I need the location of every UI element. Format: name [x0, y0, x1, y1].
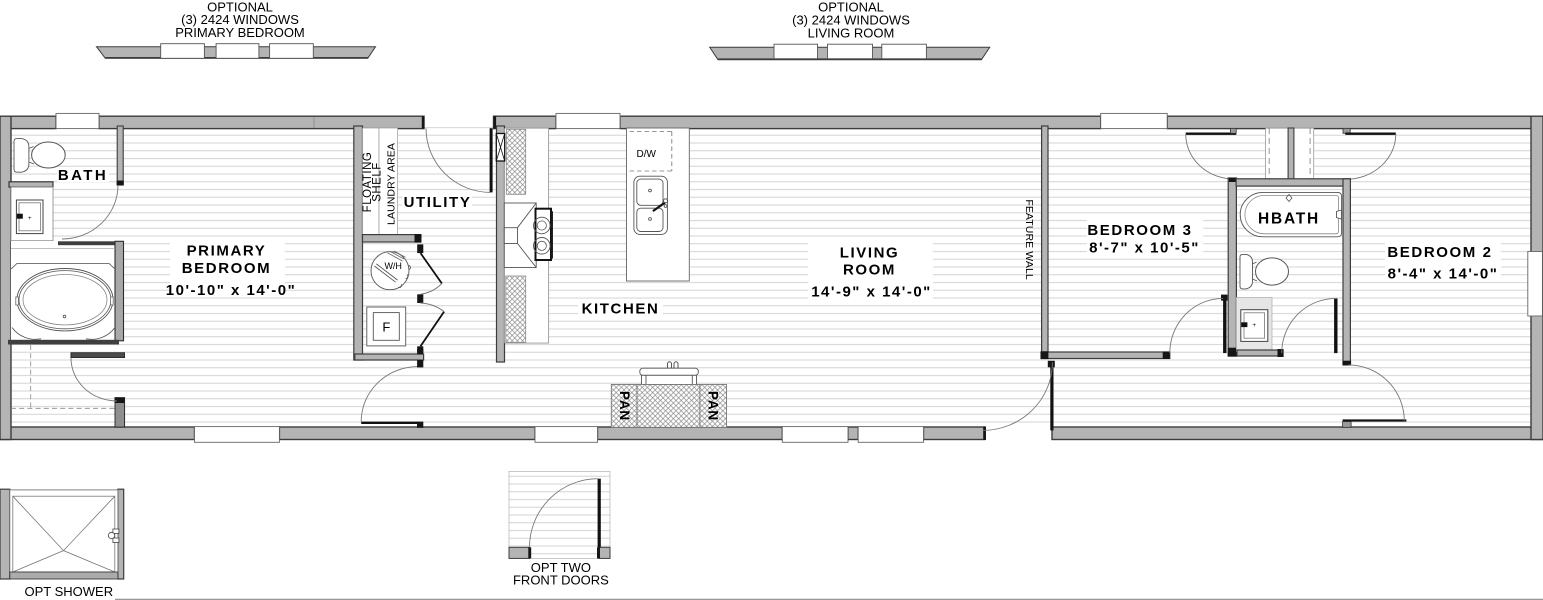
svg-text:BATH: BATH [58, 167, 108, 184]
svg-text:PRIMARY: PRIMARY [187, 242, 267, 259]
svg-text:PAN: PAN [706, 391, 721, 421]
svg-text:OPT SHOWER: OPT SHOWER [24, 584, 113, 599]
svg-text:BEDROOM 2: BEDROOM 2 [1387, 244, 1492, 261]
svg-text:LIVING: LIVING [840, 244, 900, 261]
svg-text:+: + [28, 216, 32, 222]
svg-text:8'-7" x 10'-5": 8'-7" x 10'-5" [1089, 240, 1200, 257]
svg-text:BEDROOM 3: BEDROOM 3 [1087, 222, 1192, 239]
svg-text:ROOM: ROOM [843, 261, 896, 278]
svg-text:W/H: W/H [384, 261, 402, 271]
svg-text:+: + [1253, 323, 1257, 329]
svg-text:LAUNDRY AREA: LAUNDRY AREA [385, 143, 397, 225]
svg-text:FRONT DOORS: FRONT DOORS [513, 573, 609, 588]
svg-text:F: F [382, 320, 390, 335]
svg-text:LIVING ROOM: LIVING ROOM [808, 25, 895, 40]
svg-text:14'-9" x 14'-0": 14'-9" x 14'-0" [811, 284, 932, 301]
svg-text:10'-10" x 14'-0": 10'-10" x 14'-0" [166, 282, 296, 299]
svg-text:KITCHEN: KITCHEN [582, 301, 660, 318]
svg-text:D/W: D/W [637, 149, 657, 160]
svg-text:UTILITY: UTILITY [404, 194, 472, 211]
svg-text:PAN: PAN [617, 391, 632, 421]
svg-text:PRIMARY BEDROOM: PRIMARY BEDROOM [175, 25, 305, 40]
svg-text:HBATH: HBATH [1258, 211, 1320, 228]
svg-text:FEATURE WALL: FEATURE WALL [1023, 199, 1035, 280]
svg-text:BEDROOM: BEDROOM [182, 260, 272, 277]
svg-text:8'-4" x 14'-0": 8'-4" x 14'-0" [1388, 266, 1499, 283]
